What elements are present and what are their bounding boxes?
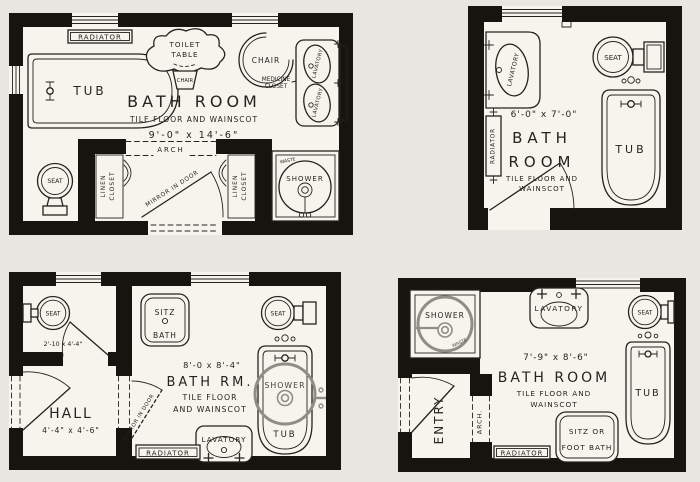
- seat-label: SEAT: [47, 178, 63, 185]
- plan-subtitle: AND WAINSCOT: [173, 405, 247, 414]
- toilet-table-label: TABLE: [170, 50, 198, 59]
- door-opening: [63, 352, 108, 366]
- shower-label: SHOWER: [264, 381, 305, 390]
- door-opening: [488, 208, 550, 230]
- window: [191, 272, 249, 286]
- window: [232, 13, 278, 27]
- shower-label: SHOWER: [286, 175, 323, 183]
- window: [9, 66, 23, 94]
- svg-text:BATH: BATH: [153, 331, 177, 340]
- plan-subtitle: WAINSCOT: [530, 400, 577, 409]
- plan-large-bathroom: RADIATOR TUB TOILET TABLE CHAIR CHAIR ME…: [8, 10, 354, 238]
- radiator-label: RADIATOR: [78, 34, 122, 42]
- radiator-label: RADIATOR: [501, 450, 544, 458]
- floor-plan-sheet: RADIATOR TUB TOILET TABLE CHAIR CHAIR ME…: [0, 0, 700, 482]
- svg-text:SITZ OR: SITZ OR: [569, 427, 605, 436]
- seat-label: SEAT: [604, 54, 622, 62]
- lavatory: LAVATORY: [196, 426, 252, 463]
- plan-subtitle: TILE FLOOR: [181, 393, 237, 402]
- radiator: RADIATOR: [68, 30, 132, 43]
- door-opening: [148, 221, 222, 235]
- plan-dimensions: 9'-0" x 14'-6": [149, 130, 240, 141]
- lavatory-label: LAVATORY: [202, 435, 247, 444]
- seat-label: SEAT: [271, 311, 286, 318]
- toilet-seat: SEAT: [38, 164, 73, 216]
- svg-text:CLOSET: CLOSET: [109, 171, 116, 200]
- svg-text:CLOSET: CLOSET: [241, 171, 248, 200]
- shower-stall: SHOWER WASTE: [410, 290, 480, 358]
- svg-text:SITZ: SITZ: [155, 308, 176, 317]
- lavatory-unit: LAVATORY LAVATORY: [296, 40, 347, 126]
- window: [576, 278, 640, 292]
- radiator-label: RADIATOR: [491, 128, 497, 164]
- seat-label: SEAT: [46, 311, 61, 318]
- svg-text:LINEN: LINEN: [232, 175, 239, 198]
- cased-opening: [398, 378, 412, 432]
- plan-subtitle: TILE FLOOR AND WAINSCOT: [129, 115, 258, 124]
- toilet-table-label: TOILET: [168, 40, 200, 49]
- svg-text:MEDICINE: MEDICINE: [262, 77, 291, 83]
- tub-label: TUB: [614, 143, 646, 156]
- svg-text:FOOT BATH: FOOT BATH: [562, 443, 613, 452]
- radiator-label: RADIATOR: [146, 450, 190, 458]
- tub-label: TUB: [634, 388, 660, 399]
- shower-label: SHOWER: [425, 311, 465, 320]
- plan-title: BATH ROOM: [498, 370, 610, 386]
- radiator: RADIATOR: [494, 446, 550, 459]
- arch-opening: ARCH.: [470, 396, 492, 442]
- plan-dimensions: 6'-0" x 7'-0": [511, 110, 578, 120]
- seat-label: SEAT: [638, 310, 653, 317]
- lavatory: LAVATORY: [530, 288, 588, 328]
- sitz-or-foot-bath: SITZ OR FOOT BATH: [556, 412, 618, 462]
- hall-label: HALL: [49, 406, 93, 422]
- plan-title: BATH: [512, 129, 572, 147]
- tub-label: TUB: [72, 84, 106, 98]
- plan-bathroom-with-hall: SEAT 2'-10 x 4'-4" HALL 4'-4" x 4'-6" SI…: [8, 268, 344, 474]
- window: [56, 272, 101, 286]
- plan-small-bathroom: LAVATORY RADIATOR SEAT TUB 6'-0" x 7'-: [462, 0, 688, 236]
- plan-title: BATH ROOM: [127, 92, 261, 111]
- hall-dimensions: 4'-4" x 4'-6": [42, 426, 100, 435]
- arch-label: ARCH: [157, 146, 184, 154]
- svg-text:LINEN: LINEN: [100, 175, 107, 198]
- wc-dimensions: 2'-10 x 4'-4": [44, 341, 83, 348]
- bathtub: TUB: [602, 77, 660, 205]
- svg-text:CLOSET: CLOSET: [265, 84, 288, 90]
- plan-dimensions: 7'-9" x 8'-6": [523, 353, 588, 363]
- shower-stall: SHOWER WASTE: [272, 151, 339, 221]
- radiator: RADIATOR: [136, 445, 200, 459]
- plan-bathroom-with-entry: ARCH. SHOWER WASTE ENTRY LAVATORY: [396, 272, 688, 476]
- cased-opening: [9, 376, 23, 428]
- cased-opening: [116, 376, 132, 428]
- bathtub: TUB: [626, 332, 670, 444]
- window: [502, 6, 562, 22]
- toilet-seat: SEAT: [262, 297, 317, 330]
- small-chair-label: CHAIR: [177, 78, 194, 84]
- chair-label: CHAIR: [252, 56, 280, 65]
- radiator: RADIATOR: [486, 109, 501, 184]
- plan-title: ROOM: [509, 153, 576, 171]
- tub-label: TUB: [272, 430, 296, 440]
- sitz-bath: SITZ BATH: [141, 294, 189, 346]
- lavatory-label: LAVATORY: [535, 304, 584, 313]
- plan-dimensions: 8'-0 x 8'-4": [183, 360, 241, 370]
- window: [72, 13, 118, 27]
- plan-title: BATH RM.: [166, 375, 253, 390]
- arch-label: ARCH.: [477, 410, 484, 434]
- plan-subtitle: TILE FLOOR AND: [516, 389, 592, 398]
- lavatory: LAVATORY: [485, 32, 541, 108]
